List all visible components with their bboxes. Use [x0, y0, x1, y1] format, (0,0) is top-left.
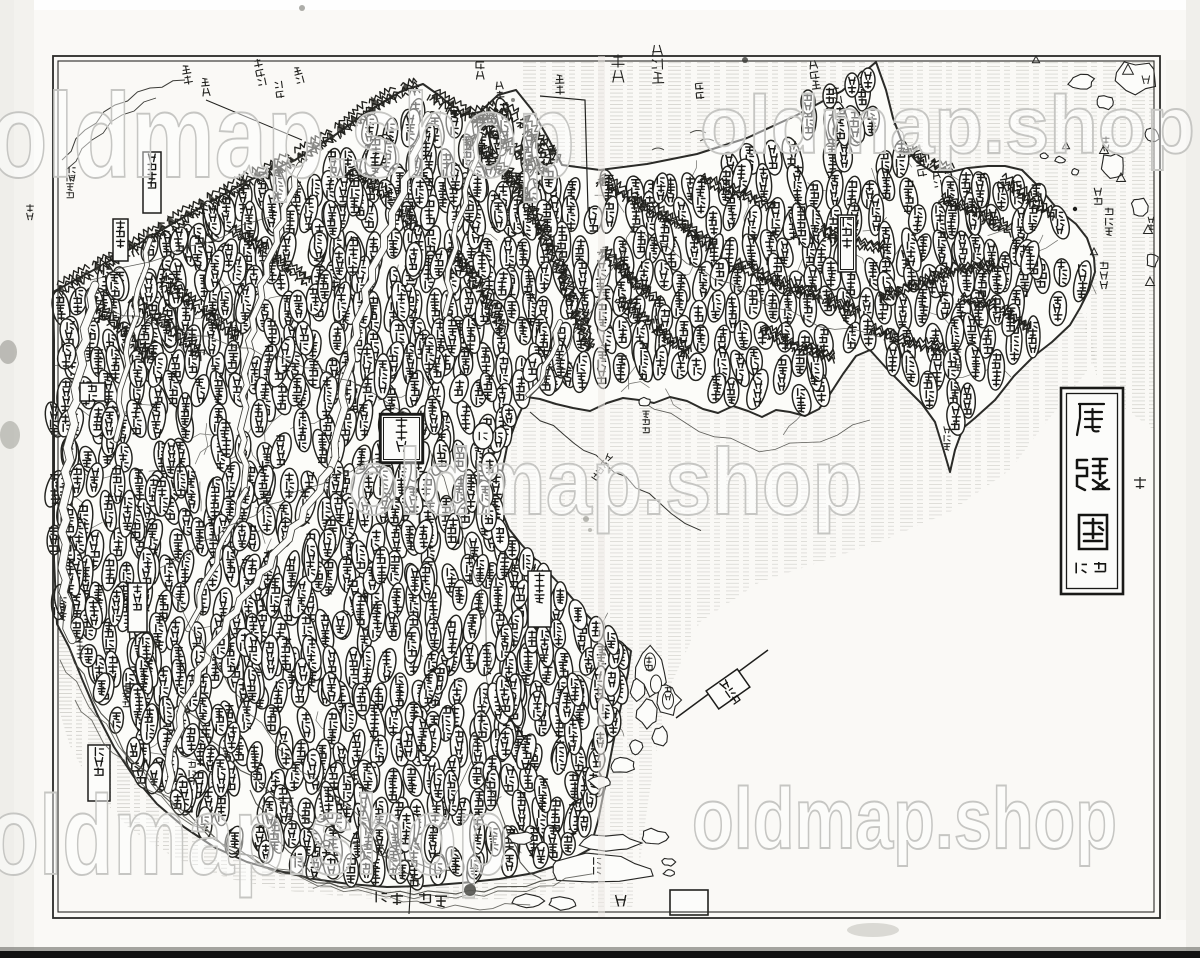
svg-text:oldmap.shop: oldmap.shop	[348, 429, 863, 534]
svg-text:oldmap.shop: oldmap.shop	[692, 771, 1117, 867]
svg-text:oldmap.shop: oldmap.shop	[700, 80, 1195, 171]
svg-text:oldmap.shop: oldmap.shop	[0, 773, 508, 898]
svg-text:oldmap.shop: oldmap.shop	[0, 69, 575, 203]
